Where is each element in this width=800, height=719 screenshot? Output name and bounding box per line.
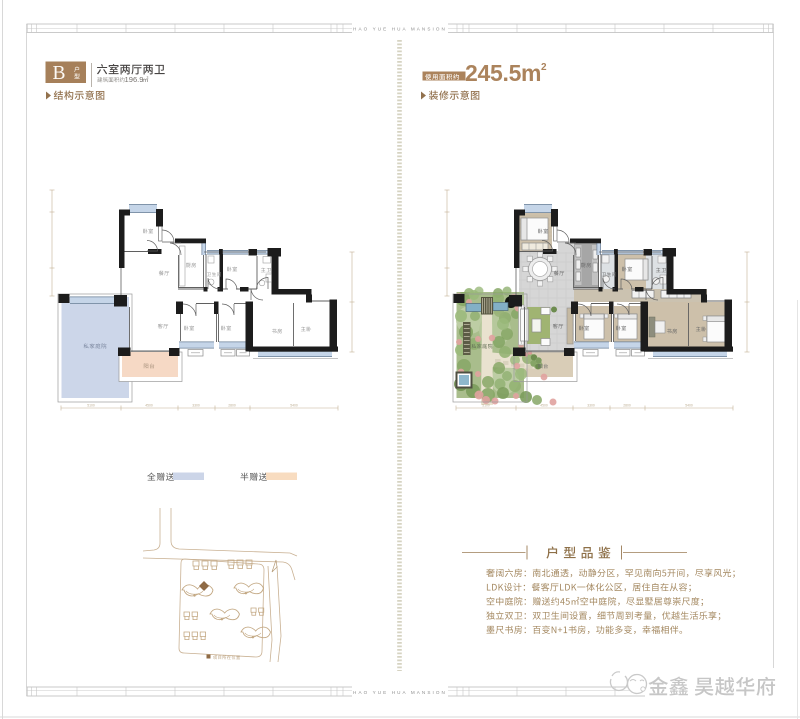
svg-text:B: B xyxy=(52,63,65,84)
svg-text:4500: 4500 xyxy=(145,403,153,407)
svg-text:3300: 3300 xyxy=(192,403,200,407)
svg-text:245.5m: 245.5m xyxy=(465,60,541,86)
svg-text:4500: 4500 xyxy=(540,403,548,407)
svg-text:5100: 5100 xyxy=(87,403,95,407)
svg-text:5400: 5400 xyxy=(685,403,693,407)
svg-text:HAO YUE HUA MANSION: HAO YUE HUA MANSION xyxy=(353,27,447,32)
svg-text:196.9: 196.9 xyxy=(125,75,144,84)
svg-text:2: 2 xyxy=(541,62,547,73)
svg-text:HAO YUE HUA MANSION: HAO YUE HUA MANSION xyxy=(353,690,447,695)
svg-text:5400: 5400 xyxy=(290,403,298,407)
svg-text:5100: 5100 xyxy=(482,403,490,407)
svg-text:3300: 3300 xyxy=(587,403,595,407)
svg-text:2800: 2800 xyxy=(228,403,236,407)
svg-text:2800: 2800 xyxy=(623,403,631,407)
